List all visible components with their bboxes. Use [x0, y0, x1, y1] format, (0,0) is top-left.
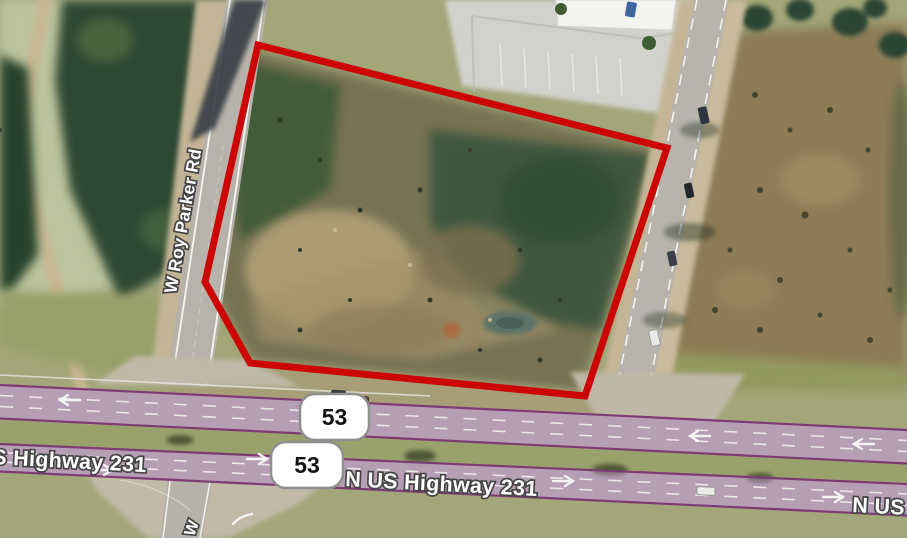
label-n-us-partial: N US — [852, 493, 906, 520]
shield-number: 53 — [322, 404, 348, 430]
aerial-imagery: W Roy Parker Rd S Highway 231 N US Highw… — [0, 0, 907, 538]
route-shield-53-top: 53 — [300, 394, 369, 440]
satellite-map-canvas[interactable]: W Roy Parker Rd S Highway 231 N US Highw… — [0, 0, 907, 538]
building-roof — [556, 0, 676, 30]
shield-number: 53 — [294, 452, 320, 478]
route-shield-53-bottom: 53 — [271, 442, 343, 488]
